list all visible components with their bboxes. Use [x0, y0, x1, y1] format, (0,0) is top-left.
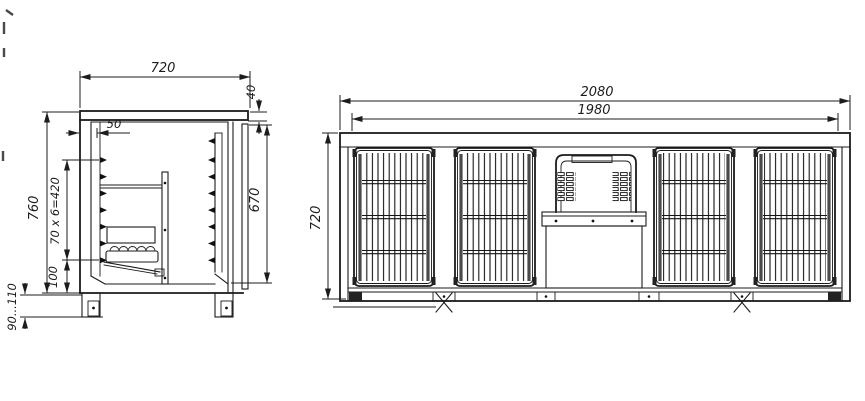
- dim-body-height: 760: [27, 196, 42, 221]
- dim-side-width: 720: [151, 61, 176, 76]
- grille-door-1: [353, 148, 436, 286]
- dim-counter-thickness: 40: [244, 85, 258, 100]
- dim-front-height: 720: [309, 206, 324, 231]
- drain-channel: [104, 262, 160, 272]
- dim-shelf-rails: 70 x 6=420: [48, 177, 62, 245]
- partition: [162, 172, 168, 284]
- coil-tubes: [110, 247, 155, 252]
- side-view-dimensions: 720 40 50 760 70 x 6=420 100: [5, 61, 272, 331]
- dim-liner-offset: 50: [107, 117, 122, 131]
- countertop: [80, 111, 248, 120]
- scan-artifacts: [3, 10, 13, 161]
- dim-overall-width: 2080: [580, 85, 613, 100]
- shelf-brackets-right: [208, 138, 215, 263]
- drawing-svg: 720 40 50 760 70 x 6=420 100: [0, 0, 865, 401]
- dim-bottom-offset: 100: [46, 266, 60, 288]
- grille-door-3: [653, 148, 736, 286]
- dim-body-width: 1980: [577, 103, 610, 118]
- dim-leg-height: 90...110: [5, 283, 19, 331]
- dim-inner-height: 670: [248, 188, 263, 213]
- foot-position-marks: [333, 293, 750, 312]
- feet-pads: [349, 292, 841, 301]
- evaporator-coil: [107, 227, 155, 243]
- leg-right: [215, 293, 233, 317]
- leg-left: [82, 293, 100, 317]
- grille-doors: [353, 148, 837, 286]
- vent-strip: [572, 156, 612, 163]
- grille-door-4: [754, 148, 837, 286]
- machine-compartment: [542, 155, 646, 288]
- lower-panel: [546, 226, 642, 288]
- drip-tray: [106, 251, 158, 262]
- technical-drawing-page: 720 40 50 760 70 x 6=420 100: [0, 0, 865, 401]
- shelf-brackets-left: [100, 157, 107, 263]
- louver-right: [613, 172, 631, 202]
- grille-door-2: [454, 148, 537, 286]
- crossbar-panel: [542, 212, 646, 226]
- louver-left: [558, 172, 576, 202]
- front-view: 2080 1980 720: [309, 85, 850, 312]
- side-section-view: 720 40 50 760 70 x 6=420 100: [5, 61, 272, 331]
